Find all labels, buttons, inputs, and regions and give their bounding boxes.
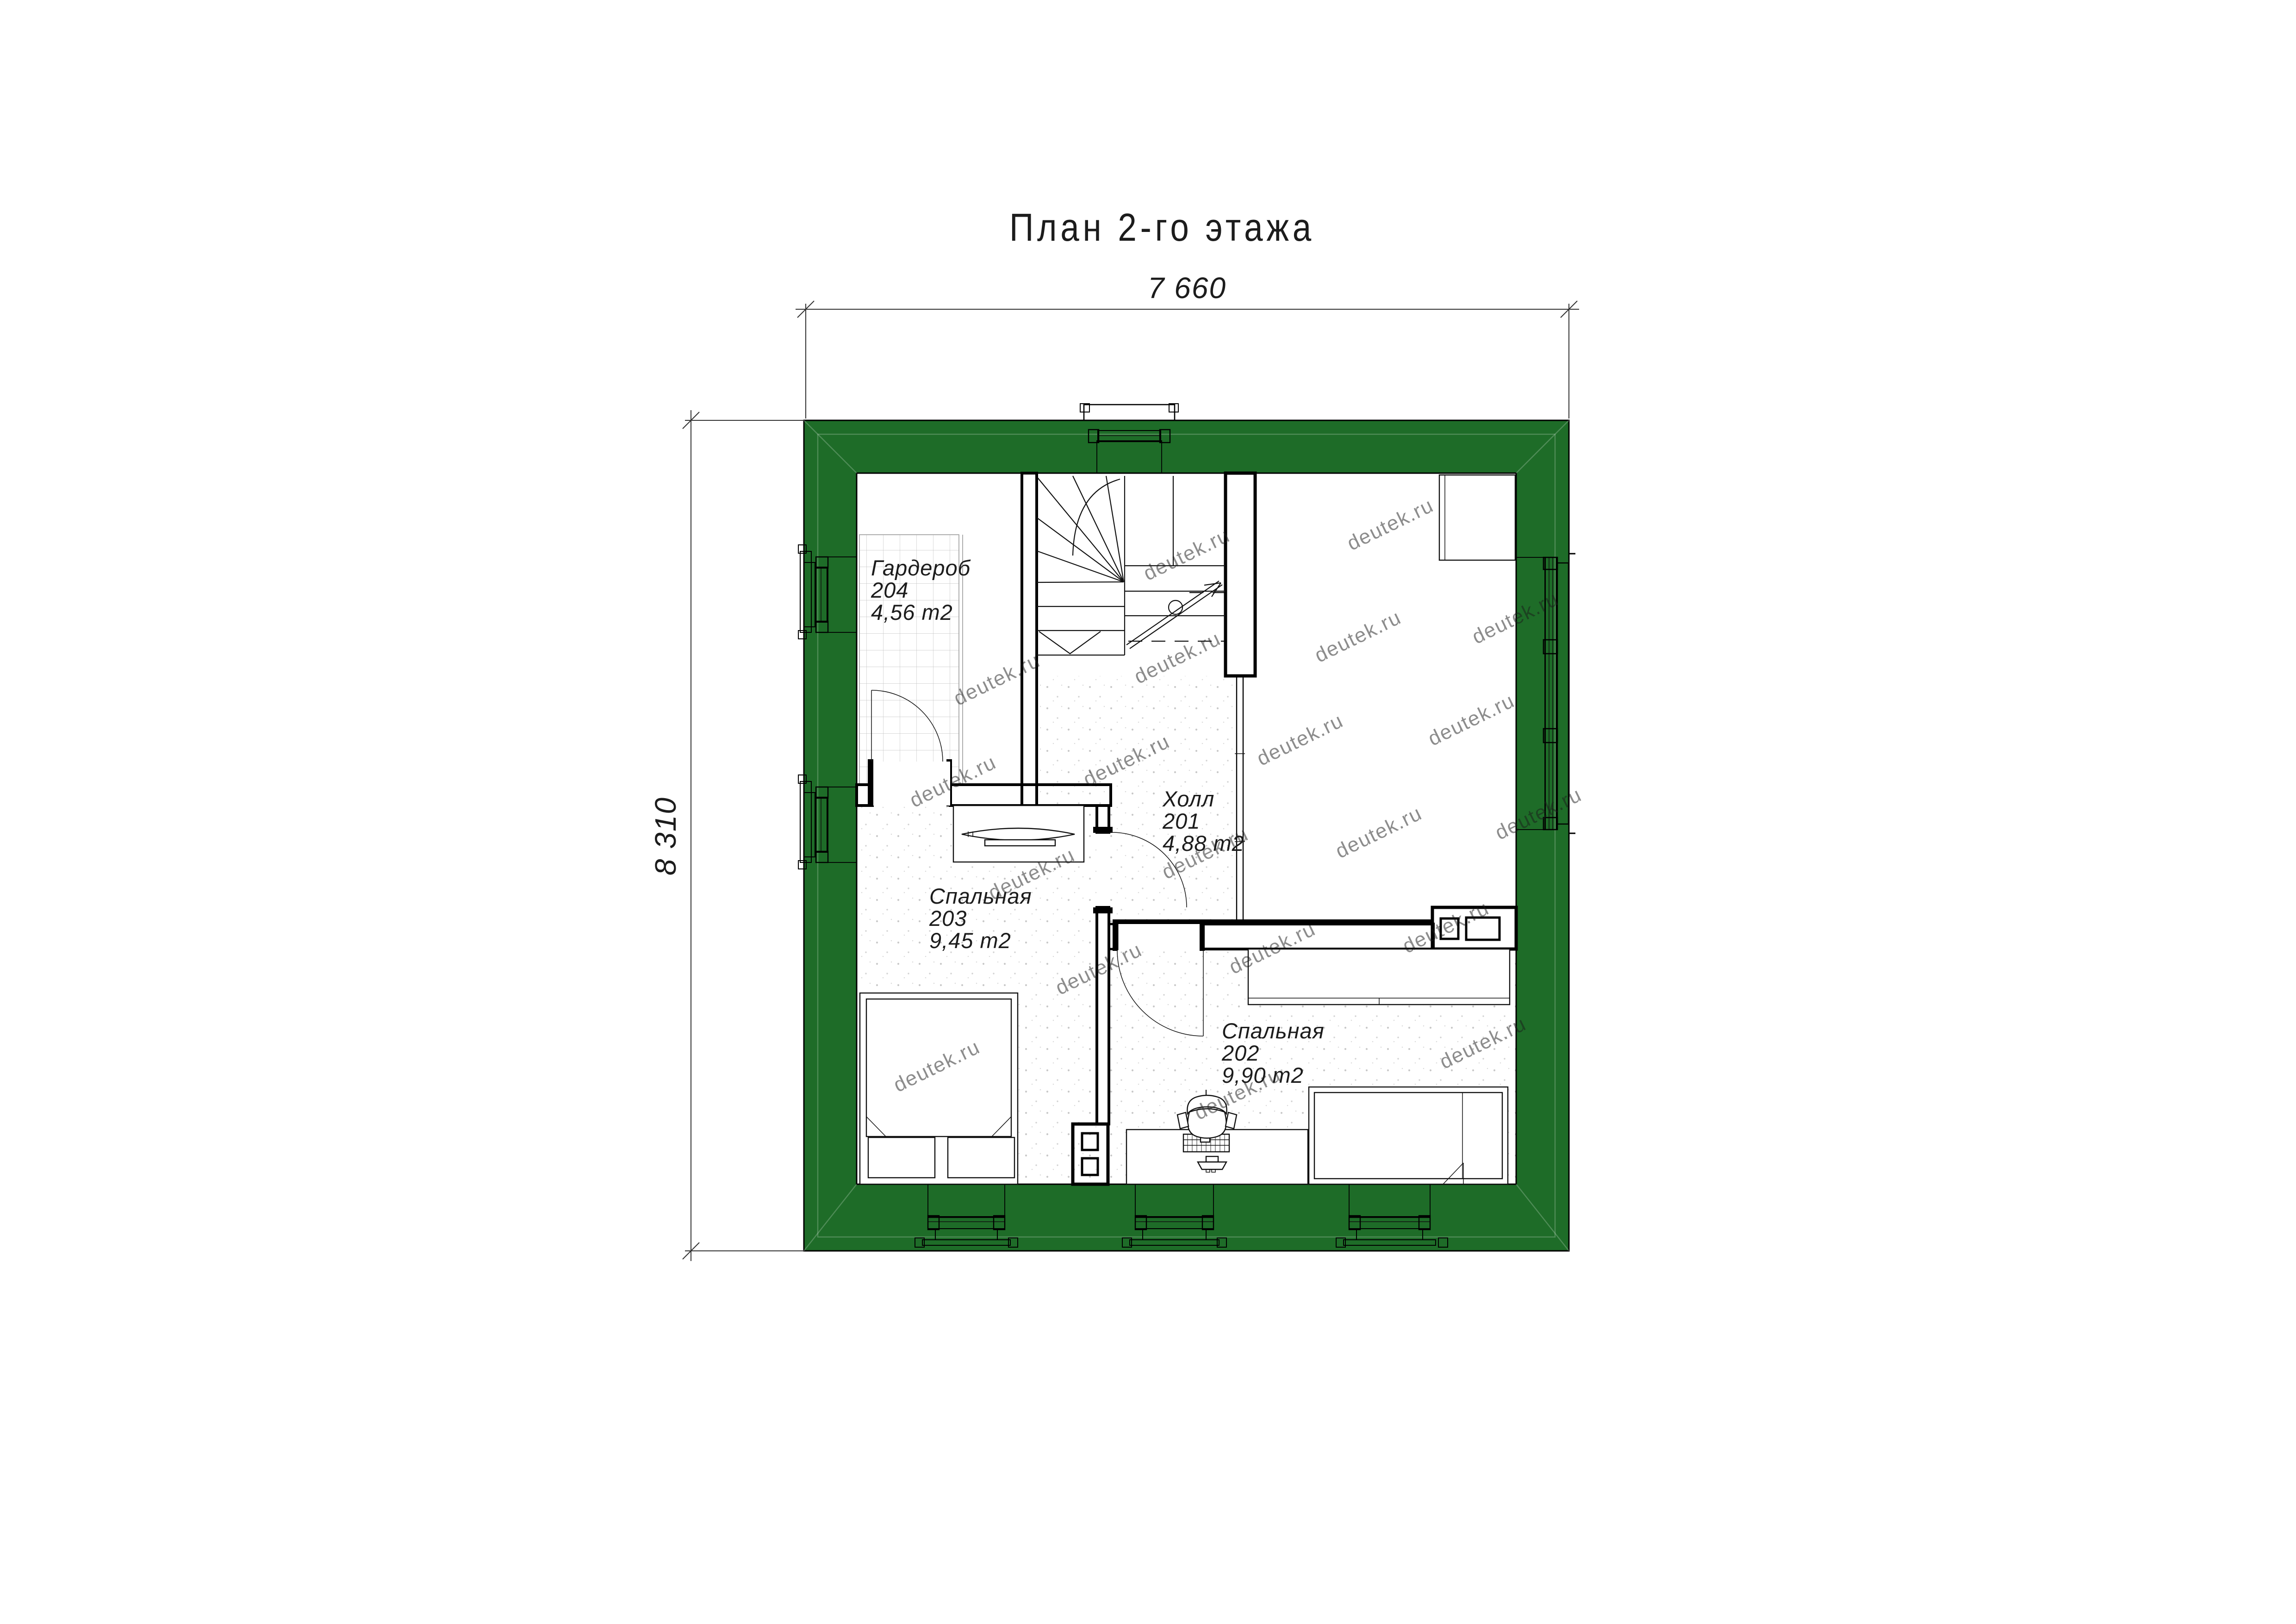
bed-double [860,993,1018,1184]
room-number: 203 [929,906,967,931]
desk [1126,1130,1308,1184]
floor-plan-page: deutek.rudeutek.rudeutek.rudeutek.rudeut… [0,0,2296,1624]
room-area: 9,45 m2 [929,928,1011,953]
room-name: Спальная [1222,1018,1325,1043]
room-name: Холл [1162,787,1214,811]
room-number: 202 [1221,1041,1259,1065]
room-area: 4,88 m2 [1163,831,1244,856]
dimension-left-value: 8 310 [649,797,682,875]
closet-bedroom-202 [1248,949,1510,1005]
closet-top-right [1439,475,1515,560]
room-number: 201 [1162,809,1200,833]
dimension-top-value: 7 660 [1148,271,1226,305]
plan-title: План 2-го этажа [1009,206,1315,249]
room-name: Гардероб [871,556,971,580]
room-number: 204 [871,578,908,602]
bed-single [1309,1087,1508,1184]
room-name: Спальная [929,884,1032,908]
room-area: 9,90 m2 [1222,1063,1304,1087]
room-area: 4,56 m2 [871,600,953,625]
